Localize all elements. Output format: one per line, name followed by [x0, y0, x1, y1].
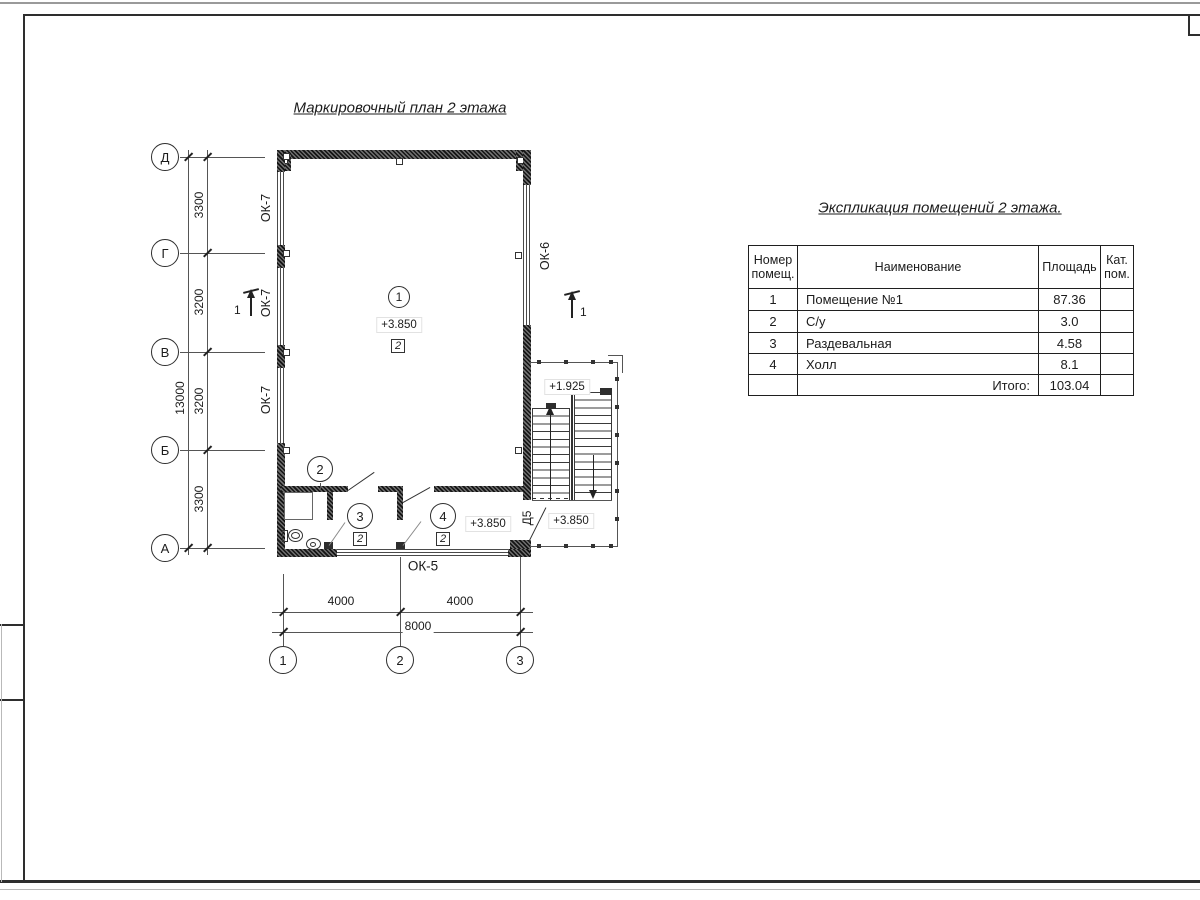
window-ok7-band [277, 268, 284, 345]
axis-circle-1: 1 [269, 646, 297, 674]
mark-ok6: ОК-6 [538, 242, 552, 270]
room-number-4: 4 [430, 503, 456, 529]
window-ok6-band [523, 185, 530, 325]
mark-ok5: ОК-5 [408, 559, 438, 574]
cell-cat [1101, 333, 1134, 354]
dim-value-3300-bottom: 3300 [192, 486, 206, 513]
annex-tick [615, 377, 619, 381]
shower-tray [284, 492, 313, 520]
table-row: 3 Раздевальная 4.58 [749, 333, 1134, 354]
annex-tick [537, 360, 541, 364]
room-type-tag-1: 2 [391, 339, 405, 353]
wall-bottom-left [277, 549, 337, 557]
window-ok5-band [337, 549, 508, 556]
frame-top [23, 14, 1200, 16]
page-edge-top [0, 2, 1200, 4]
stair-flight-left [532, 408, 570, 500]
cell-area: 87.36 [1039, 289, 1101, 311]
dim-value-4000-left: 4000 [328, 594, 355, 608]
window-tick [283, 447, 290, 454]
annex-corner-offset-v [622, 355, 623, 373]
annex-tick [615, 489, 619, 493]
axis-line-b [180, 450, 265, 451]
elevation-hall: +3.850 [465, 516, 511, 532]
axis-circle-v: В [151, 338, 179, 366]
axis-line-v [180, 352, 265, 353]
leader-room4 [403, 521, 422, 546]
room-type-label: 2 [440, 533, 446, 545]
table-header-cat: Кат. пом. [1101, 246, 1134, 289]
annex-tick [615, 461, 619, 465]
total-label: Итого: [798, 375, 1039, 396]
annex-tick [609, 544, 613, 548]
mark-ok7-1: ОК-7 [259, 194, 273, 222]
annex-tick [564, 544, 568, 548]
elevation-landing: +1.925 [544, 379, 590, 395]
axis-line-a [180, 548, 265, 549]
table-header-area: Площадь [1039, 246, 1101, 289]
cell-num-empty [749, 375, 798, 396]
window-tick [515, 252, 522, 259]
table-header-name: Наименование [798, 246, 1039, 289]
door-leaf [348, 472, 375, 491]
window-tick [283, 250, 290, 257]
axis-circle-d: Д [151, 143, 179, 171]
wall-right-pier-top [523, 150, 531, 185]
cell-area: 8.1 [1039, 354, 1101, 375]
annex-tick [537, 544, 541, 548]
axis-circle-a: А [151, 534, 179, 562]
partition-mid-side [397, 492, 403, 520]
plan-title: Маркировочный план 2 этажа [294, 100, 507, 117]
frame-corner-box-v [1188, 14, 1190, 36]
table-row: 1 Помещение №1 87.36 [749, 289, 1134, 311]
cell-num: 4 [749, 354, 798, 375]
room-number-1: 1 [388, 286, 410, 308]
axis-label: 1 [279, 653, 286, 668]
cell-area: 4.58 [1039, 333, 1101, 354]
dim-line-h-seg [272, 612, 533, 613]
room-type-tag-4: 2 [436, 532, 450, 546]
axis-label: 2 [396, 653, 403, 668]
annex-edge-bottom [530, 546, 618, 547]
stair-walkline-right [593, 455, 594, 491]
cell-name: Раздевальная [798, 333, 1039, 354]
total-value: 103.04 [1039, 375, 1101, 396]
dim-value-3300-top: 3300 [192, 192, 206, 219]
stair-cut-dashed-line [532, 498, 570, 499]
axis-label: Г [161, 246, 168, 261]
partition-wc-side [327, 492, 333, 520]
stair-block [546, 403, 556, 409]
section-arrow-left-line [250, 296, 252, 316]
axis-label: Б [161, 443, 170, 458]
door-leaf [403, 487, 431, 503]
table-header-num: Номер помещ. [749, 246, 798, 289]
stair-bottom-line [532, 500, 612, 501]
window-tick [283, 349, 290, 356]
annex-edge-top [530, 362, 618, 363]
mark-ok7-2: ОК-7 [259, 289, 273, 317]
axis-circle-2: 2 [386, 646, 414, 674]
cell-num: 1 [749, 289, 798, 311]
cell-cat [1101, 289, 1134, 311]
annex-tick [609, 360, 613, 364]
frame-margin-tick-2 [0, 699, 23, 701]
dim-value-3200-b: 3200 [192, 388, 206, 415]
table-row: 4 Холл 8.1 [749, 354, 1134, 375]
room-number-label: 2 [316, 462, 323, 477]
drawing-sheet: Маркировочный план 2 этажа Д Г В Б А 330… [0, 0, 1200, 900]
cell-num: 3 [749, 333, 798, 354]
section-label-right: 1 [580, 305, 587, 319]
cell-area: 3.0 [1039, 311, 1101, 333]
partition-hall [434, 486, 523, 492]
cell-name: Помещение №1 [798, 289, 1039, 311]
leader-room2 [320, 483, 321, 491]
cell-cat [1101, 311, 1134, 333]
cell-name: С/у [798, 311, 1039, 333]
wall-bottom-right [508, 549, 530, 557]
room-number-3: 3 [347, 503, 373, 529]
cell-name: Холл [798, 354, 1039, 375]
explication-table: Номер помещ. Наименование Площадь Кат. п… [748, 245, 1134, 396]
room-number-label: 4 [439, 509, 446, 524]
axis-label: Д [161, 150, 170, 165]
dim-value-13000: 13000 [173, 381, 187, 414]
annex-tick [591, 360, 595, 364]
room-number-label: 1 [396, 290, 403, 304]
page-edge-bottom [0, 889, 1200, 890]
table-row: 2 С/у 3.0 [749, 311, 1134, 333]
mark-d5: Д5 [520, 511, 534, 526]
leader-room3 [329, 522, 346, 546]
axis-circle-b: Б [151, 436, 179, 464]
toilet-bowl-inner [291, 532, 300, 539]
room-number-2: 2 [307, 456, 333, 482]
annex-tick [615, 517, 619, 521]
elevation-annex: +3.850 [548, 513, 594, 529]
frame-margin-tick-1 [0, 624, 23, 626]
annex-corner-offset-h [608, 355, 623, 356]
stair-block [600, 388, 612, 395]
dim-value-8000: 8000 [403, 619, 434, 633]
frame-corner-box-h [1188, 34, 1200, 36]
room-number-label: 3 [356, 509, 363, 524]
frame-bottom [0, 880, 1200, 883]
room-type-label: 2 [357, 533, 363, 545]
annex-tick [615, 405, 619, 409]
window-ok7-band [277, 368, 284, 443]
dim-value-4000-right: 4000 [447, 594, 474, 608]
cell-num: 2 [749, 311, 798, 333]
annex-tick [615, 433, 619, 437]
annex-tick [591, 544, 595, 548]
window-tick [283, 153, 290, 160]
axis-circle-3: 3 [506, 646, 534, 674]
stair-down-arrow [589, 490, 597, 499]
frame-left [23, 14, 25, 882]
window-ok7-band [277, 172, 284, 245]
window-tick [515, 447, 522, 454]
table-total-row: Итого: 103.04 [749, 375, 1134, 396]
stair-divider [571, 392, 573, 500]
mark-ok7-3: ОК-7 [259, 386, 273, 414]
dim-line-v-total [188, 150, 189, 555]
stair-walkline-left [550, 414, 551, 500]
elevation-main: +3.850 [376, 317, 422, 333]
axis-label: 3 [516, 653, 523, 668]
section-arrow-right-line [571, 298, 573, 318]
room-type-label: 2 [395, 340, 401, 352]
window-tick [396, 158, 403, 165]
cell-cat-empty [1101, 375, 1134, 396]
axis-label: В [161, 345, 170, 360]
axis-circle-g: Г [151, 239, 179, 267]
annex-tick [564, 360, 568, 364]
dim-value-3200-a: 3200 [192, 289, 206, 316]
axis-line-d [180, 157, 265, 158]
table-title: Экспликация помещений 2 этажа. [818, 200, 1061, 217]
wall-right-pier [523, 325, 531, 500]
room-type-tag-3: 2 [353, 532, 367, 546]
section-label-left: 1 [234, 303, 241, 317]
wall-top [277, 150, 530, 159]
axis-line-g [180, 253, 265, 254]
page-edge-left [1, 624, 2, 882]
cell-cat [1101, 354, 1134, 375]
axis-label: А [161, 541, 170, 556]
sink-bowl-inner [310, 542, 316, 547]
